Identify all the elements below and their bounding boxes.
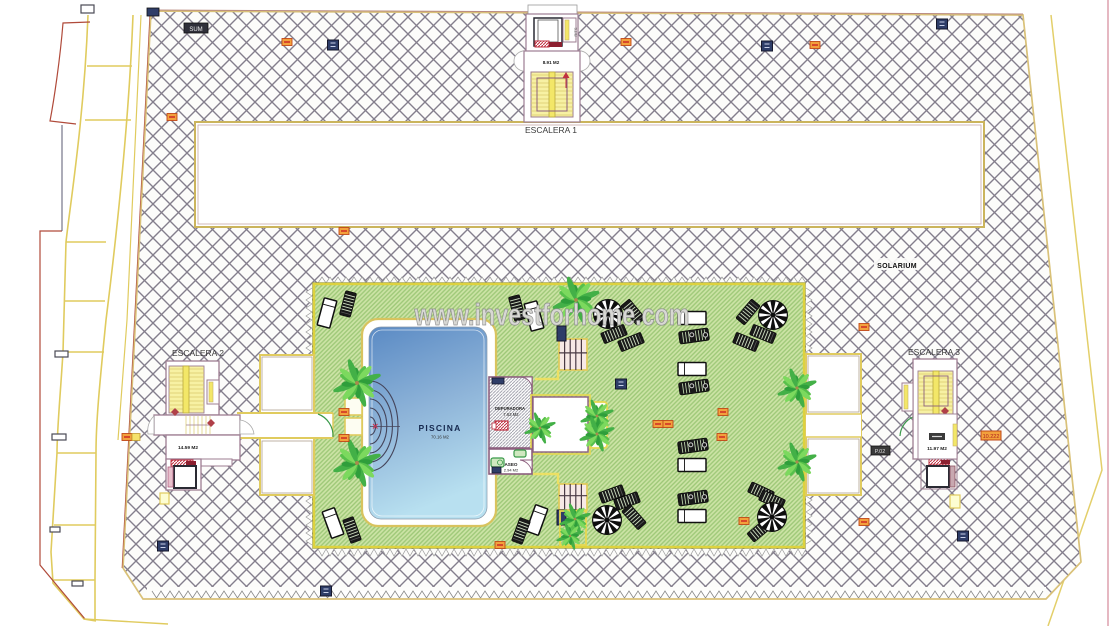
svg-text:10.222: 10.222 xyxy=(983,434,1000,440)
svg-text:ESCALERA 1: ESCALERA 1 xyxy=(525,125,577,135)
svg-text:ESCALERA 3: ESCALERA 3 xyxy=(908,347,960,357)
svg-text:2.94 M2: 2.94 M2 xyxy=(504,468,519,473)
svg-text:DEPURADORA: DEPURADORA xyxy=(495,406,525,411)
svg-text:PISCINA: PISCINA xyxy=(419,423,462,433)
svg-text:ESCALERA 2: ESCALERA 2 xyxy=(172,348,224,358)
svg-text:www.investforhome.com: www.investforhome.com xyxy=(414,297,690,332)
svg-text:SOLARIUM: SOLARIUM xyxy=(877,263,917,270)
svg-text:11.97 M2: 11.97 M2 xyxy=(927,446,947,452)
svg-text:7.63 M2: 7.63 M2 xyxy=(503,412,519,417)
svg-text:RITS: RITS xyxy=(573,27,578,36)
svg-text:ASEO: ASEO xyxy=(504,462,517,467)
svg-text:14.59 M2: 14.59 M2 xyxy=(178,445,198,451)
svg-text:SUM: SUM xyxy=(189,27,202,33)
svg-text:70.16 M2: 70.16 M2 xyxy=(431,435,450,440)
svg-text:P.02: P.02 xyxy=(875,449,886,455)
svg-text:8.91 M2: 8.91 M2 xyxy=(543,60,560,65)
